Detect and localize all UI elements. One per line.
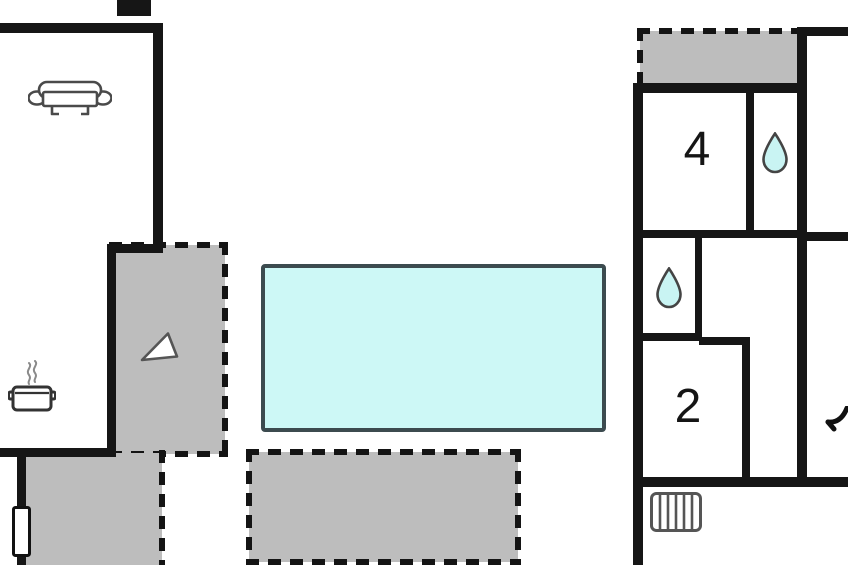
floor-plan-svg bbox=[0, 0, 848, 565]
right-house-middle-right-wall bbox=[797, 232, 848, 241]
bath2-right-wall bbox=[695, 236, 702, 338]
right-house-bottom-wall bbox=[633, 477, 848, 487]
radiator-icon bbox=[652, 494, 701, 531]
living-room-right-wall bbox=[153, 23, 163, 253]
swimming-pool bbox=[263, 266, 604, 430]
top-right-terrace bbox=[640, 31, 798, 83]
right-house-middle-wall bbox=[637, 230, 803, 238]
pool-layer bbox=[263, 266, 604, 430]
floor-plan: 4 2 bbox=[0, 0, 848, 565]
room-label-4: 4 bbox=[684, 126, 711, 174]
bedroom2-right-wall bbox=[742, 340, 750, 483]
cooking-pot-icon bbox=[9, 361, 56, 410]
bath2-bottom-wall bbox=[640, 333, 702, 341]
living-room-top-wall bbox=[0, 23, 163, 33]
lower-left-terrace bbox=[21, 453, 162, 565]
right-house-left-wall bbox=[633, 83, 643, 565]
water-drop-icon bbox=[658, 269, 681, 308]
window-icon bbox=[14, 508, 30, 556]
sofa-icon bbox=[29, 82, 112, 114]
water-drop-icon bbox=[764, 134, 787, 173]
right-house-top-wall bbox=[633, 83, 807, 93]
curve-mark-icon bbox=[828, 408, 847, 429]
bottom-terrace bbox=[249, 452, 518, 562]
room-label-2: 2 bbox=[675, 383, 702, 431]
chimney bbox=[117, 0, 151, 16]
living-room-left-lower-wall bbox=[107, 244, 116, 457]
bedroom4-bath-divider-wall bbox=[746, 93, 754, 233]
right-house-right-wall bbox=[797, 27, 807, 487]
